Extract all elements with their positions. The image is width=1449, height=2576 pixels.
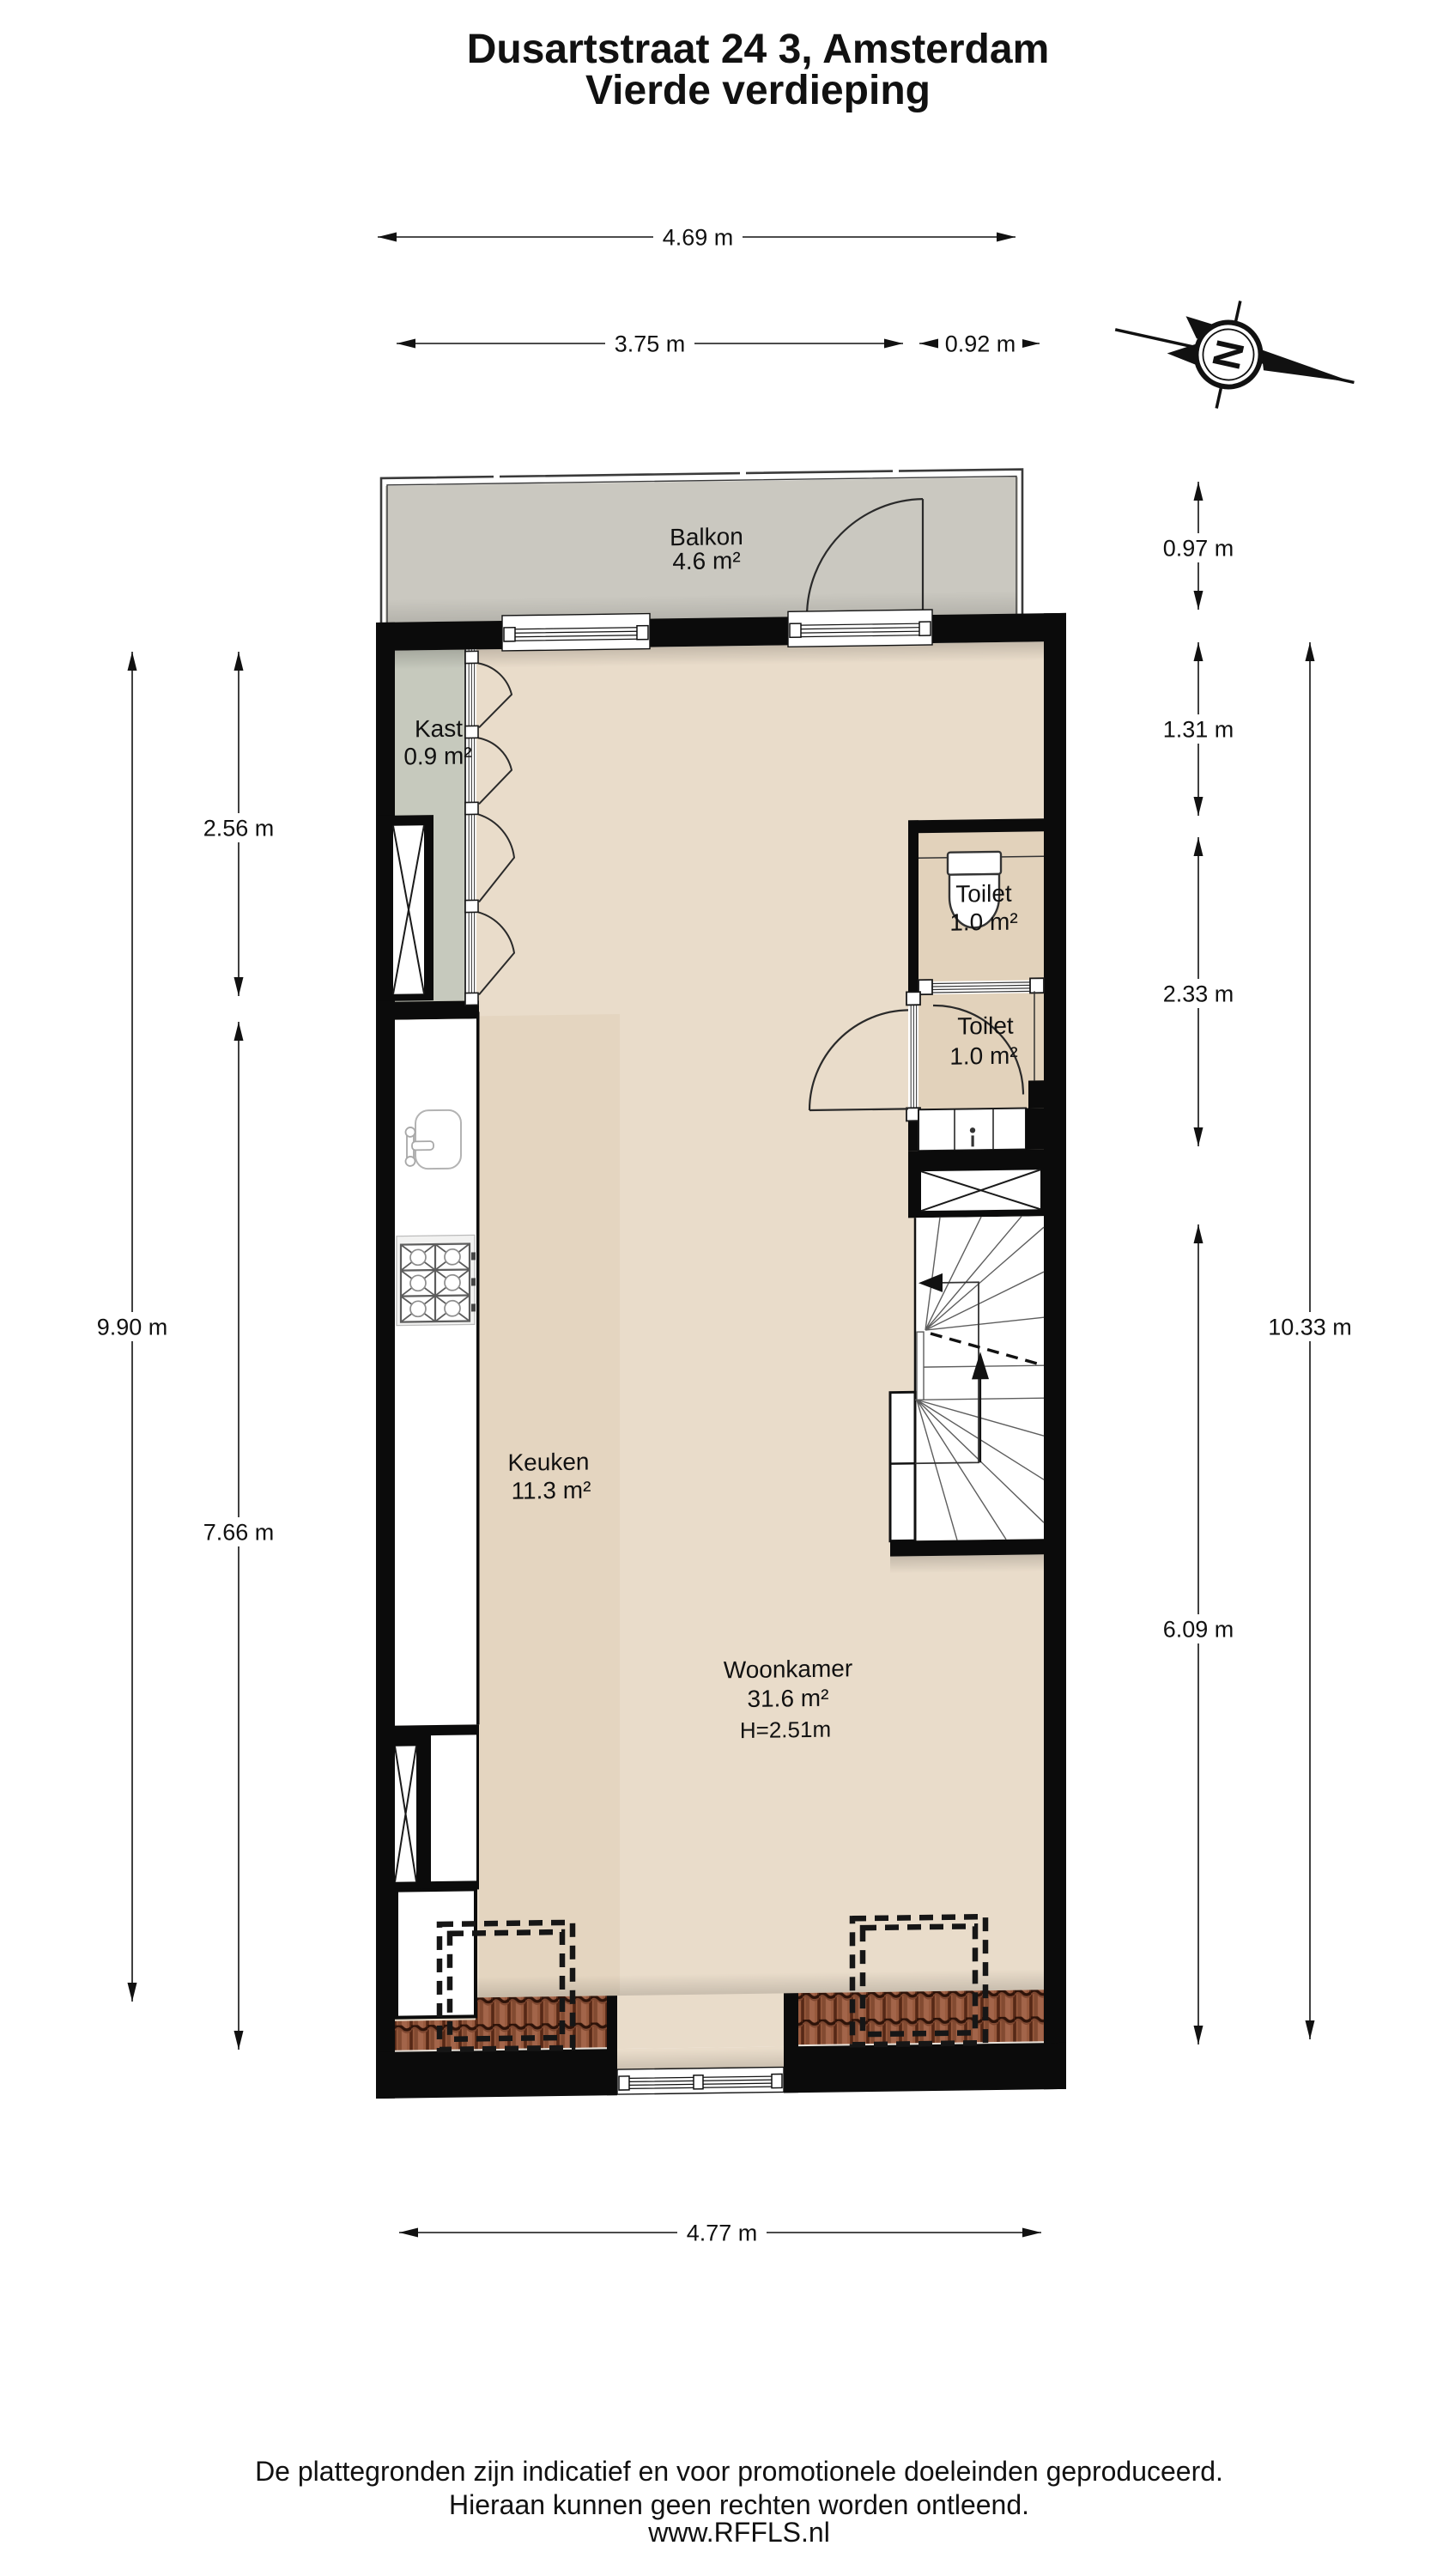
svg-text:0.92 m: 0.92 m bbox=[945, 331, 1016, 357]
svg-text:10.33 m: 10.33 m bbox=[1268, 1315, 1352, 1340]
svg-text:Kast: Kast bbox=[415, 715, 463, 743]
svg-text:Dusartstraat 24 3, Amsterdam: Dusartstraat 24 3, Amsterdam bbox=[467, 27, 1050, 72]
svg-text:3.75 m: 3.75 m bbox=[615, 331, 686, 357]
svg-text:2.56 m: 2.56 m bbox=[203, 816, 275, 841]
svg-text:4.6 m²: 4.6 m² bbox=[672, 547, 740, 574]
svg-text:1.31 m: 1.31 m bbox=[1163, 717, 1234, 743]
svg-text:www.RFFLS.nl: www.RFFLS.nl bbox=[647, 2517, 830, 2548]
svg-text:11.3 m²: 11.3 m² bbox=[512, 1477, 591, 1504]
svg-text:31.6 m²: 31.6 m² bbox=[748, 1685, 829, 1712]
svg-text:Vierde verdieping: Vierde verdieping bbox=[585, 68, 931, 113]
svg-text:Toilet: Toilet bbox=[955, 880, 1012, 908]
svg-text:4.69 m: 4.69 m bbox=[663, 225, 734, 251]
svg-text:Hieraan kunnen geen rechten wo: Hieraan kunnen geen rechten worden ontle… bbox=[449, 2489, 1029, 2520]
svg-text:1.0 m²: 1.0 m² bbox=[949, 908, 1017, 936]
svg-text:Keuken: Keuken bbox=[508, 1449, 590, 1476]
svg-text:6.09 m: 6.09 m bbox=[1163, 1617, 1234, 1643]
svg-text:0.9 m²: 0.9 m² bbox=[403, 742, 471, 769]
svg-text:4.77 m: 4.77 m bbox=[687, 2221, 758, 2246]
svg-text:Toilet: Toilet bbox=[957, 1012, 1014, 1040]
svg-text:9.90 m: 9.90 m bbox=[97, 1315, 168, 1340]
svg-text:H=2.51m: H=2.51m bbox=[740, 1716, 831, 1743]
svg-text:7.66 m: 7.66 m bbox=[203, 1520, 275, 1546]
svg-text:De plattegronden zijn indicati: De plattegronden zijn indicatief en voor… bbox=[255, 2456, 1223, 2487]
svg-text:1.0 m²: 1.0 m² bbox=[949, 1042, 1017, 1070]
svg-text:2.33 m: 2.33 m bbox=[1163, 981, 1234, 1007]
svg-text:0.97 m: 0.97 m bbox=[1163, 536, 1234, 562]
svg-text:Woonkamer: Woonkamer bbox=[724, 1655, 852, 1683]
